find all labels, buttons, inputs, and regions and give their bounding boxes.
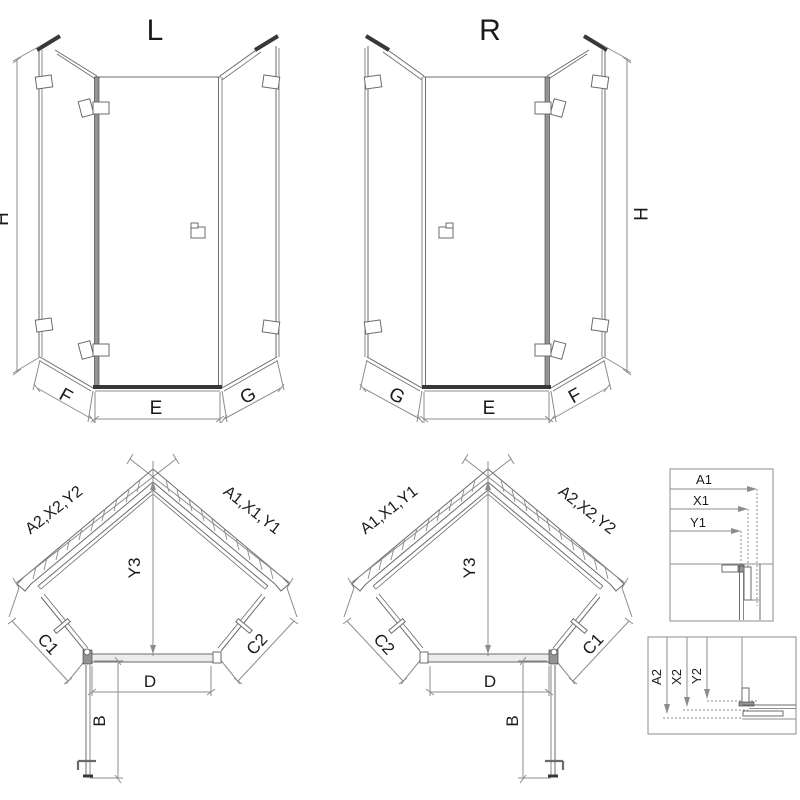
plan-right-dim-wall-left: A1,X1,Y1 <box>357 483 421 538</box>
plan-right-dim-c1: C1 <box>579 630 608 659</box>
plan-left-dim-y3: Y3 <box>125 558 144 579</box>
glass-connector <box>54 619 70 634</box>
elevation-left-dim-f: F <box>55 384 75 408</box>
wall-bracket <box>35 75 53 89</box>
top-profile-section <box>722 564 760 620</box>
hinge-pivot <box>84 649 90 655</box>
wall-hatch <box>33 480 140 579</box>
plan-right-dim-b: B <box>503 715 522 726</box>
top-corner-cap <box>255 36 278 50</box>
detail-bottom-dim-x2: X2 <box>669 669 684 685</box>
door-hinge-top <box>78 99 109 118</box>
plan-right-dim-y3: Y3 <box>460 558 479 579</box>
elevation-right-title: R <box>479 14 501 47</box>
elevation-geometry <box>13 36 284 423</box>
top-corner-cap <box>37 36 60 50</box>
detail-top-dim-a1: A1 <box>696 472 712 487</box>
plan-left-dim-wall-left: A2,X2,Y2 <box>22 483 86 538</box>
detail-box-top: A1 X1 Y1 <box>670 469 773 621</box>
elevation-left-dim-g: G <box>237 383 260 409</box>
bottom-profile-section <box>739 688 796 716</box>
detail-bottom-dim-y2: Y2 <box>689 668 704 684</box>
detail-top-dim-y1: Y1 <box>690 515 706 530</box>
hinge-profile <box>95 77 100 387</box>
detail-bottom-dim-a2: A2 <box>649 669 664 685</box>
detail-top-dim-x1: X1 <box>693 493 709 508</box>
plan-left-dim-c2: C2 <box>243 630 272 659</box>
wall-bracket <box>262 75 280 89</box>
plan-left-dim-b: B <box>90 715 109 726</box>
plan-right-dim-d: D <box>484 672 496 691</box>
wall-bracket <box>35 318 53 332</box>
plan-left-dim-c1: C1 <box>34 630 63 659</box>
plan-right-dim-c2: C2 <box>370 630 399 659</box>
elevation-left-title: L <box>147 14 164 47</box>
plan-left-dim-wall-right: A1,X1,Y1 <box>220 483 284 538</box>
door-hinge-bottom <box>78 341 109 360</box>
corner-post <box>213 652 221 663</box>
elevation-right-dim-e: E <box>483 398 496 419</box>
elevation-left-dim-e: E <box>150 398 163 419</box>
elevation-right-geometry <box>360 36 631 423</box>
elevation-right-dim-h: H <box>629 207 650 221</box>
elevation-left-dim-h: H <box>0 212 13 226</box>
plan-left-dim-d: D <box>144 672 156 691</box>
technical-drawing-page: L H F E G R H G E F <box>0 0 800 800</box>
door-handle <box>191 223 205 238</box>
plan-right-dim-wall-right: A2,X2,Y2 <box>555 483 619 538</box>
wall-bracket <box>262 320 280 334</box>
shower-enclosure-drawing: L H F E G R H G E F <box>0 0 800 800</box>
dimension-y3 <box>150 461 156 656</box>
detail-box-bottom: A2 X2 Y2 <box>648 637 796 734</box>
elevation-right-dim-f: F <box>565 384 585 408</box>
elevation-right-dim-g: G <box>385 383 408 409</box>
